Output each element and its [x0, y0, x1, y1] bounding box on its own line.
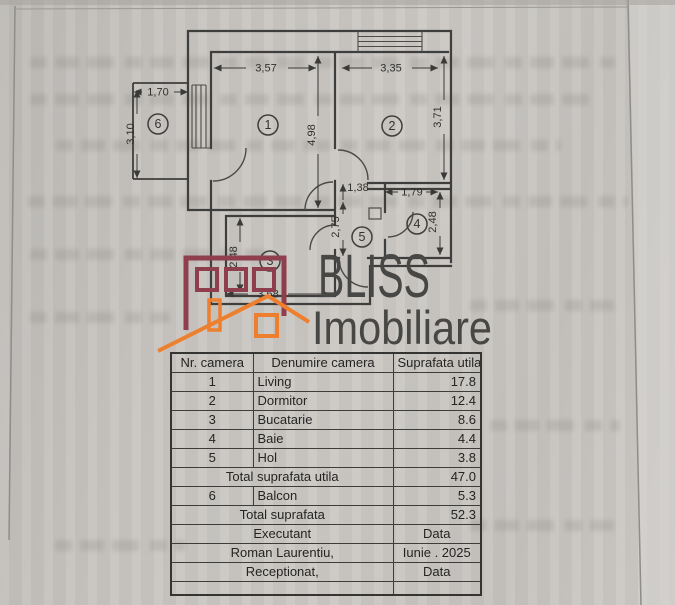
dim-living-width: 3,57	[255, 63, 276, 75]
executant-row: Executant Data	[171, 525, 481, 544]
author-name: Roman Laurentiu,	[171, 544, 393, 563]
room-area: 17.8	[393, 373, 481, 392]
room-nr: 1	[171, 373, 253, 392]
total-label: Total suprafata	[171, 506, 393, 525]
room-name: Baie	[253, 430, 393, 449]
total-utila-row: Total suprafata utila 47.0	[171, 468, 481, 487]
door-arc-balcony	[213, 148, 246, 181]
dim-baie-width: 1,79	[401, 187, 422, 199]
room-nr: 2	[171, 392, 253, 411]
table-row: 5 Hol 3.8	[171, 449, 481, 468]
empty-cell	[171, 582, 393, 596]
col-header-denumire: Denumire camera	[253, 353, 393, 373]
total-row: Total suprafata 52.3	[171, 506, 481, 525]
room-area: 5.3	[393, 487, 481, 506]
table-row: 3 Bucatarie 8.6	[171, 411, 481, 430]
door-arc-baie	[388, 212, 413, 237]
room-label-baie: 4	[414, 217, 421, 231]
total-value: 52.3	[393, 506, 481, 525]
room-nr: 5	[171, 449, 253, 468]
room-name: Dormitor	[253, 392, 393, 411]
empty-cell	[393, 582, 481, 596]
dim-balcon-width: 1,70	[147, 87, 168, 99]
table-row: 1 Living 17.8	[171, 373, 481, 392]
table-row: 2 Dormitor 12.4	[171, 392, 481, 411]
room-label-balcon: 6	[155, 117, 162, 131]
dim-dormitor-width: 3,35	[380, 63, 401, 75]
room-label-dormitor: 2	[389, 119, 396, 133]
area-table: Nr. camera Denumire camera Suprafata uti…	[170, 352, 482, 596]
receptionat-label: Receptionat,	[171, 563, 393, 582]
window-hatch-balcony	[192, 85, 211, 148]
executant-label: Executant	[171, 525, 393, 544]
dim-hol-height: 2,75	[330, 216, 342, 237]
dim-balcon-height: 3,10	[125, 123, 137, 144]
table-header-row: Nr. camera Denumire camera Suprafata uti…	[171, 353, 481, 373]
empty-row	[171, 582, 481, 596]
door-arc-dormitor	[338, 150, 368, 180]
room-nr: 4	[171, 430, 253, 449]
room-area: 3.8	[393, 449, 481, 468]
room-area: 8.6	[393, 411, 481, 430]
room-label-living: 1	[265, 118, 272, 132]
room-name: Hol	[253, 449, 393, 468]
receptionat-data-label: Data	[393, 563, 481, 582]
logo-brand-line2: Imobiliare	[312, 301, 492, 354]
scanned-document-page: 3,57 3,35 1,70 3,10 4,98 3,71 1,38 1,79 …	[0, 0, 675, 605]
dim-dormitor-height: 3,71	[432, 106, 444, 127]
logo-brand-line1: BLISS	[318, 242, 430, 310]
room-name: Balcon	[253, 487, 393, 506]
author-row: Roman Laurentiu, Iunie . 2025	[171, 544, 481, 563]
dim-baie-height: 2,48	[427, 211, 439, 232]
author-date: Iunie . 2025	[393, 544, 481, 563]
dim-living-height: 4,98	[306, 124, 318, 145]
table-row: 4 Baie 4.4	[171, 430, 481, 449]
fixture-symbol	[369, 208, 381, 219]
executant-data-label: Data	[393, 525, 481, 544]
dim-hol-opening: 1,38	[347, 182, 368, 194]
room-name: Living	[253, 373, 393, 392]
total-utila-label: Total suprafata utila	[171, 468, 393, 487]
room-nr: 6	[171, 487, 253, 506]
col-header-suprafata: Suprafata utila (mp)	[393, 353, 481, 373]
room-area: 12.4	[393, 392, 481, 411]
window-hatch-top	[358, 31, 422, 52]
room-area: 4.4	[393, 430, 481, 449]
room-name: Bucatarie	[253, 411, 393, 430]
door-arc-hol	[305, 182, 333, 210]
logo-building-windows-icon	[197, 269, 274, 290]
receptionat-row: Receptionat, Data	[171, 563, 481, 582]
total-utila-value: 47.0	[393, 468, 481, 487]
col-header-nr-camera: Nr. camera	[171, 353, 253, 373]
room-nr: 3	[171, 411, 253, 430]
table-row: 6 Balcon 5.3	[171, 487, 481, 506]
